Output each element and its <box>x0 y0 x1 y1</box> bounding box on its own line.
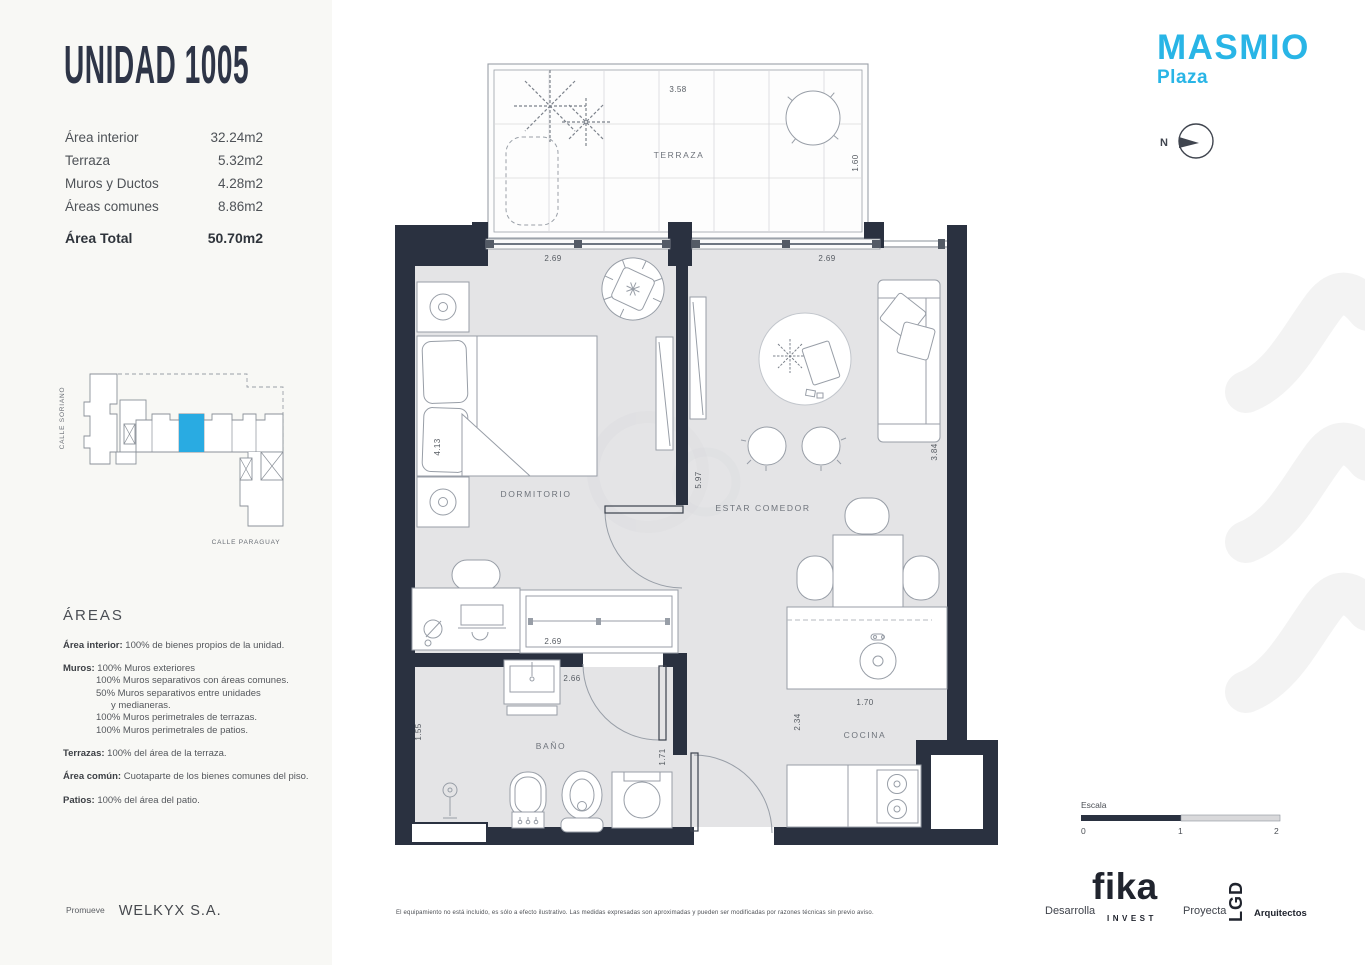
room-label-dormitorio: DORMITORIO <box>500 489 571 499</box>
dim-estar-width: 2.69 <box>818 254 835 263</box>
dim-kitchen-depth: 2.34 <box>793 713 802 730</box>
room-label-estar: ESTAR COMEDOR <box>715 503 810 513</box>
kitchen-counter <box>787 765 921 827</box>
bath-niche <box>411 823 487 843</box>
developer-label: Desarrolla <box>1045 905 1095 917</box>
room-label-terraza: TERRAZA <box>654 150 705 160</box>
scale-bar: Escala 0 1 2 <box>1081 800 1280 836</box>
remote <box>817 393 823 398</box>
tv-unit-estar <box>690 297 706 419</box>
windows <box>486 239 947 249</box>
scale-tick-0: 0 <box>1081 826 1086 836</box>
architect-logo: LGD <box>1226 868 1247 922</box>
compass-needle <box>1179 137 1199 148</box>
compass-north-label: N <box>1160 137 1168 149</box>
dim-terraza-depth: 1.60 <box>851 154 860 171</box>
room-label-cocina: COCINA <box>844 730 887 740</box>
terraza: 3.58 1.60 TERRAZA <box>488 64 868 238</box>
disclaimer: El equipamiento no está incluido, es sól… <box>396 909 874 916</box>
scale-label: Escala <box>1081 800 1107 810</box>
scale-tick-2: 2 <box>1274 826 1279 836</box>
developer-sublabel: INVEST <box>1107 914 1157 923</box>
bed <box>417 336 597 476</box>
bidet <box>510 772 546 828</box>
architect-sublabel: Arquitectos <box>1254 908 1307 919</box>
remote <box>806 389 816 396</box>
dim-living-length: 5.97 <box>694 471 703 488</box>
washing-machine <box>612 772 672 828</box>
nightstand <box>417 477 469 527</box>
terraza-table <box>786 91 840 145</box>
room-label-bano: BAÑO <box>536 741 567 751</box>
sofa <box>878 280 940 442</box>
dim-kitchen-width: 1.70 <box>856 698 873 707</box>
plant <box>773 339 807 373</box>
dim-closet-width: 2.69 <box>544 637 561 646</box>
compass: N <box>1160 124 1213 158</box>
toilet <box>561 771 603 832</box>
dim-shower-width: 1.55 <box>414 723 423 740</box>
dim-bath-width: 2.66 <box>563 674 580 683</box>
scale-tick-1: 1 <box>1178 826 1183 836</box>
tv-unit-dorm <box>656 337 673 450</box>
dim-hall-width: 1.71 <box>658 748 667 765</box>
kitchen-island <box>787 607 947 689</box>
nightstand <box>417 282 469 332</box>
dim-terraza-width: 3.58 <box>669 85 686 94</box>
dim-dorm-length: 4.13 <box>433 438 442 455</box>
vanity-sink <box>504 660 560 715</box>
floor-plan: 3.58 1.60 TERRAZA <box>0 0 1365 965</box>
dim-estar-depth: 3.84 <box>930 443 939 460</box>
architect-label: Proyecta <box>1183 905 1226 917</box>
dim-dorm-width: 2.69 <box>544 254 561 263</box>
developer-logo: fika <box>1092 868 1158 905</box>
floor-plan-sheet: UNIDAD 1005 Área interior 32.24m2 Terraz… <box>0 0 1365 965</box>
